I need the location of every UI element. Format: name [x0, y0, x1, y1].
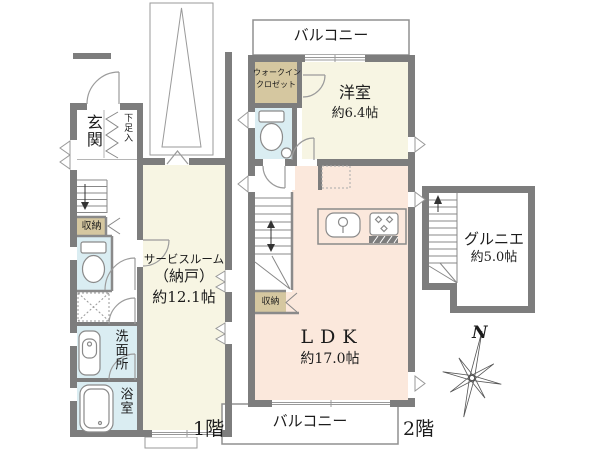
service-room-label1: サービスルーム	[141, 253, 227, 266]
attic-size-label: 約5.0帖	[455, 251, 533, 266]
western-room-size-label: 約6.4帖	[302, 107, 408, 122]
service-room-label2: （納戸）	[141, 268, 227, 285]
bathtub-icon	[80, 385, 113, 432]
attic-label: グルニエ	[455, 231, 533, 248]
floor1-label: 1階	[193, 419, 224, 440]
entrance-door	[87, 72, 119, 104]
washroom-door	[109, 298, 135, 324]
stairs-attic	[429, 193, 457, 283]
storage2f-label: 収納	[255, 297, 286, 307]
service-room-size-label: 約12.1帖	[141, 289, 227, 306]
storage1f-door	[108, 218, 120, 234]
storage1f-label: 収納	[77, 221, 106, 232]
western-room-label: 洋室	[302, 84, 408, 102]
balcony-bottom-label: バルコニー	[222, 413, 398, 430]
compass-star	[443, 331, 502, 417]
north-label: N	[472, 324, 488, 343]
balcony-top-label: バルコニー	[253, 27, 409, 44]
shoe-cabinet-label: 下足入	[122, 113, 132, 143]
floor2-label: 2階	[403, 419, 434, 440]
washroom-label: 洗面所	[112, 329, 127, 371]
genkan-label: 玄関	[84, 114, 102, 148]
parking-space	[150, 3, 213, 155]
ldk-label: LDK	[280, 327, 384, 348]
counter-hatch	[369, 236, 398, 243]
corridor2f	[255, 166, 295, 190]
wic-label2: クロゼット	[253, 81, 299, 90]
ldk-size-label: 約17.0帖	[280, 352, 380, 368]
wic-label1: ウォークイン	[253, 69, 299, 78]
toilet1f-icon	[81, 242, 106, 283]
floor-plan: 玄関 下足入 収納 サービスルーム （納戸） 約12.1帖 洗面所 浴室 1階 …	[0, 0, 600, 450]
bathroom-label: 浴室	[117, 387, 132, 415]
vanity-sink-icon	[79, 331, 100, 375]
porch-step	[145, 437, 197, 448]
